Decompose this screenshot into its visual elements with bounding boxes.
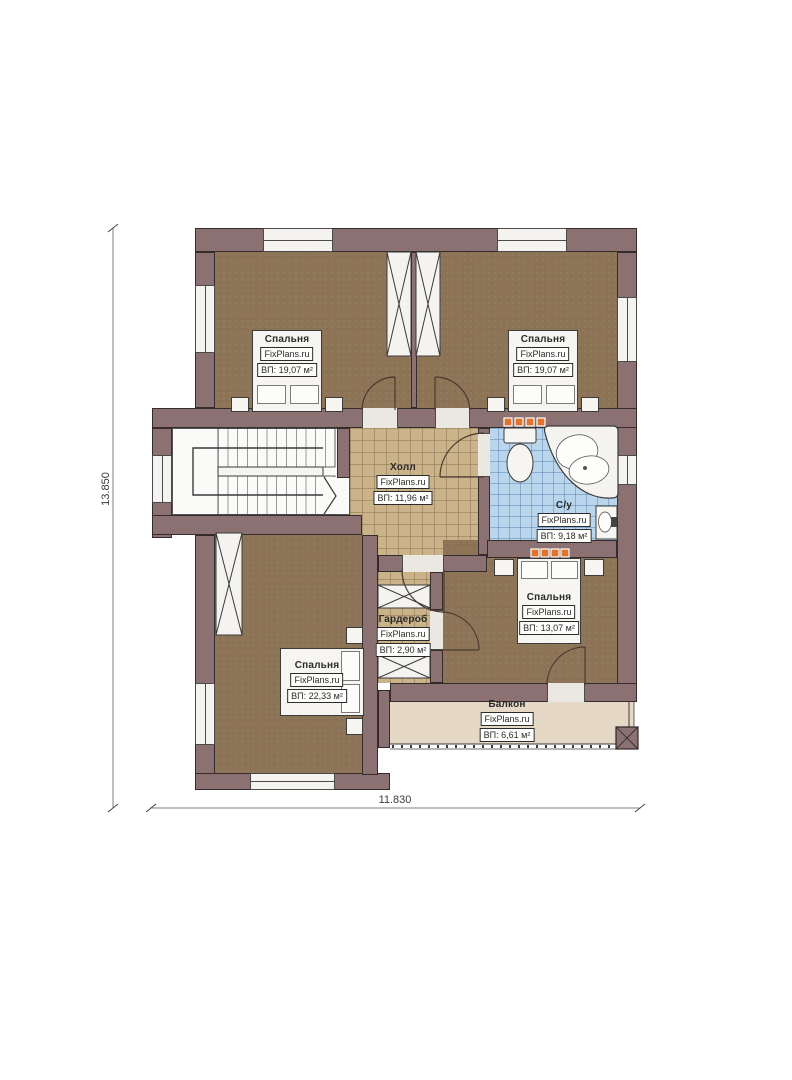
- room-name: Гардероб: [379, 614, 428, 625]
- door-opening-balcony: [547, 683, 585, 702]
- wall-wardrobe-right-upper: [430, 572, 443, 610]
- door-opening-bathroom: [478, 433, 490, 477]
- window-right-bathroom: [617, 455, 637, 485]
- window-stair-left: [152, 455, 172, 503]
- room-stamp-bedroom-top-left: Спальня FixPlans.ru ВП: 19,07 м²: [257, 334, 317, 377]
- nightstand: [231, 397, 249, 412]
- room-brand: FixPlans.ru: [480, 712, 533, 726]
- room-stamp-bedroom-top-right: Спальня FixPlans.ru ВП: 19,07 м²: [513, 334, 573, 377]
- room-stamp-hall: Холл FixPlans.ru ВП: 11,96 м²: [373, 462, 432, 505]
- room-stamp-bedroom-bottom-right: Спальня FixPlans.ru ВП: 13,07 м²: [519, 592, 579, 635]
- nightstand: [325, 397, 343, 412]
- pillow: [257, 385, 286, 404]
- room-area: ВП: 11,96 м²: [373, 491, 432, 505]
- room-area: ВП: 6,61 м²: [480, 728, 535, 742]
- room-area: ВП: 19,07 м²: [257, 363, 317, 377]
- window-top-right: [497, 228, 567, 252]
- pillow: [521, 561, 548, 579]
- dimension-width-label: 11.830: [360, 794, 430, 806]
- pillow: [513, 385, 542, 404]
- window-top-left: [263, 228, 333, 252]
- door-opening-bedroom-tr: [435, 408, 470, 428]
- floor-plan-canvas: Спальня FixPlans.ru ВП: 19,07 м² Спальня…: [0, 0, 792, 1080]
- nightstand: [346, 718, 363, 735]
- nightstand: [487, 397, 505, 412]
- room-area: ВП: 2,90 м²: [376, 643, 431, 657]
- window-left-upper: [195, 285, 215, 353]
- room-stamp-bedroom-bottom-left: Спальня FixPlans.ru ВП: 22,33 м²: [287, 660, 347, 703]
- stair-landing-floor: [172, 428, 350, 515]
- room-brand: FixPlans.ru: [522, 605, 575, 619]
- room-name: Спальня: [295, 660, 340, 671]
- wall-partition-top-bedrooms: [411, 252, 417, 408]
- nightstand: [581, 397, 599, 412]
- window-left-lower: [195, 683, 215, 745]
- pillow: [290, 385, 319, 404]
- room-area: ВП: 22,33 м²: [287, 689, 347, 703]
- wall-stair-hall: [337, 428, 350, 478]
- nightstand: [494, 559, 514, 576]
- door-opening-bedroom-tl: [362, 408, 398, 428]
- room-brand: FixPlans.ru: [260, 347, 313, 361]
- room-name: Спальня: [521, 334, 566, 345]
- nightstand: [346, 627, 363, 644]
- room-stamp-wardrobe: Гардероб FixPlans.ru ВП: 2,90 м²: [376, 614, 431, 657]
- wall-balcony-left: [378, 690, 390, 748]
- nightstand: [584, 559, 604, 576]
- room-name: Спальня: [265, 334, 310, 345]
- dimension-height-label: 13.850: [100, 459, 112, 519]
- room-area: ВП: 9,18 м²: [537, 529, 592, 543]
- room-name: Спальня: [527, 592, 572, 603]
- room-name: Балкон: [488, 699, 525, 710]
- room-area: ВП: 13,07 м²: [519, 621, 579, 635]
- room-name: Холл: [390, 462, 416, 473]
- window-bottom-left: [250, 773, 335, 790]
- room-brand: FixPlans.ru: [290, 673, 343, 687]
- pillow: [551, 561, 578, 579]
- room-brand: FixPlans.ru: [516, 347, 569, 361]
- door-opening-corridor: [402, 555, 444, 572]
- wall-top: [195, 228, 637, 252]
- wall-stair-bottom: [152, 515, 362, 535]
- room-area: ВП: 19,07 м²: [513, 363, 573, 377]
- wall-left-lower: [195, 535, 215, 790]
- room-brand: FixPlans.ru: [537, 513, 590, 527]
- room-stamp-bathroom: С/у FixPlans.ru ВП: 9,18 м²: [537, 500, 592, 543]
- room-brand: FixPlans.ru: [376, 627, 429, 641]
- room-stamp-balcony: Балкон FixPlans.ru ВП: 6,61 м²: [480, 699, 535, 742]
- wall-wardrobe-right-lower: [430, 650, 443, 683]
- door-opening-wardrobe: [430, 610, 443, 650]
- room-brand: FixPlans.ru: [376, 475, 429, 489]
- window-right-bedroom: [617, 297, 637, 362]
- room-name: С/у: [556, 500, 572, 511]
- pillow: [546, 385, 575, 404]
